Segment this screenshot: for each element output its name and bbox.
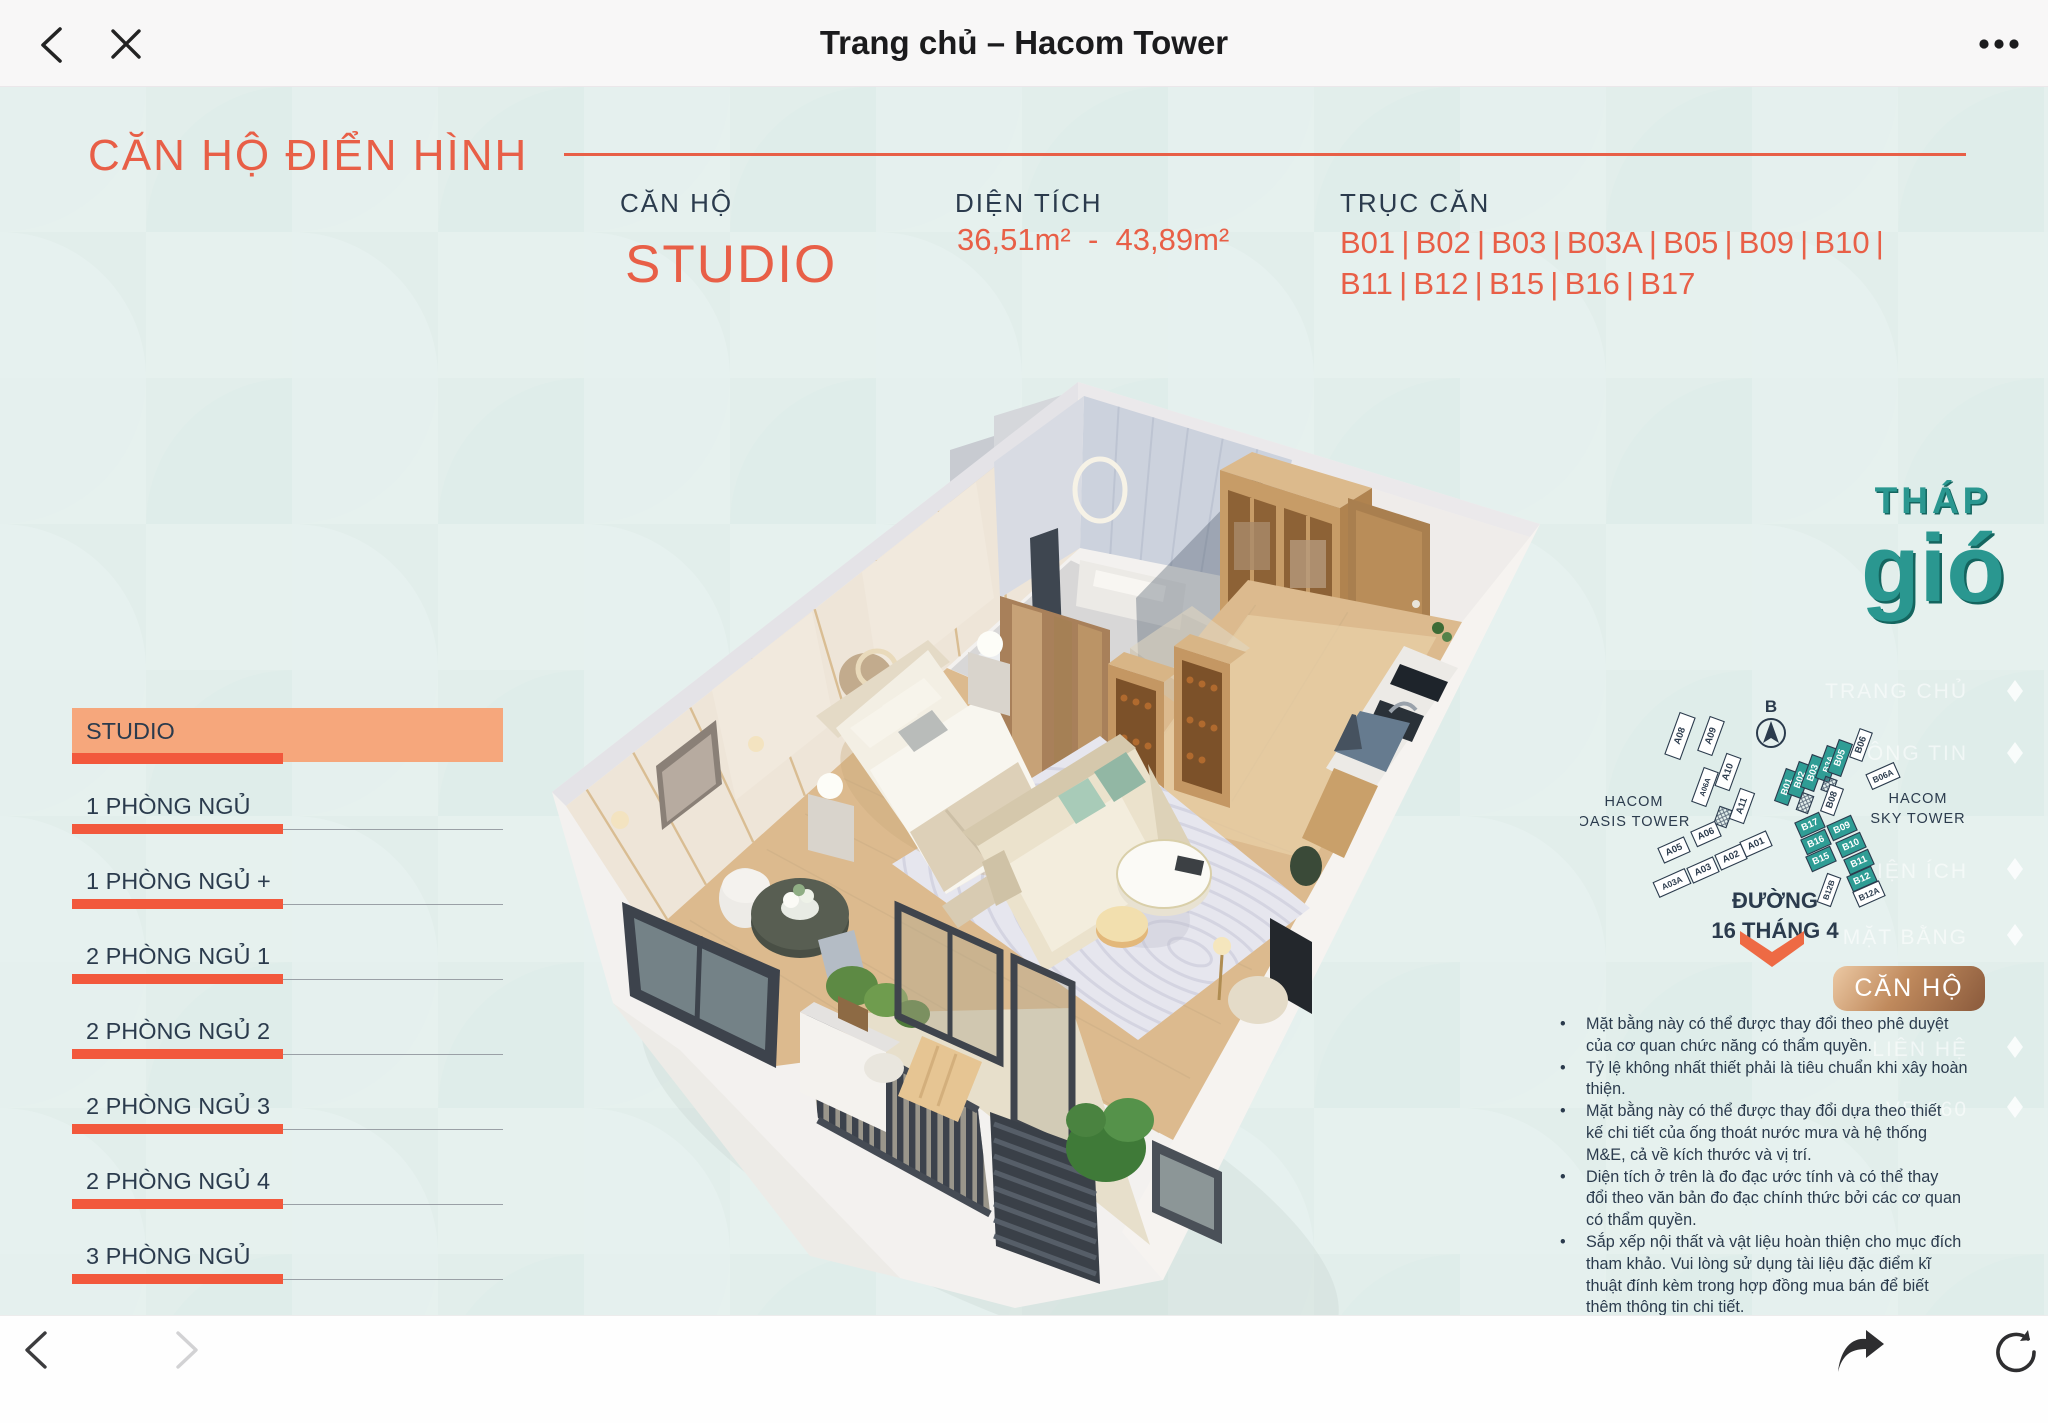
svg-text:B06: B06 bbox=[1853, 735, 1869, 755]
svg-text:HACOM: HACOM bbox=[1889, 791, 1948, 807]
svg-text:B: B bbox=[1765, 697, 1777, 716]
svg-text:B08: B08 bbox=[1824, 790, 1840, 810]
svg-text:OASIS TOWER: OASIS TOWER bbox=[1580, 814, 1690, 830]
svg-text:HACOM: HACOM bbox=[1605, 794, 1664, 810]
svg-text:SKY TOWER: SKY TOWER bbox=[1870, 811, 1965, 827]
